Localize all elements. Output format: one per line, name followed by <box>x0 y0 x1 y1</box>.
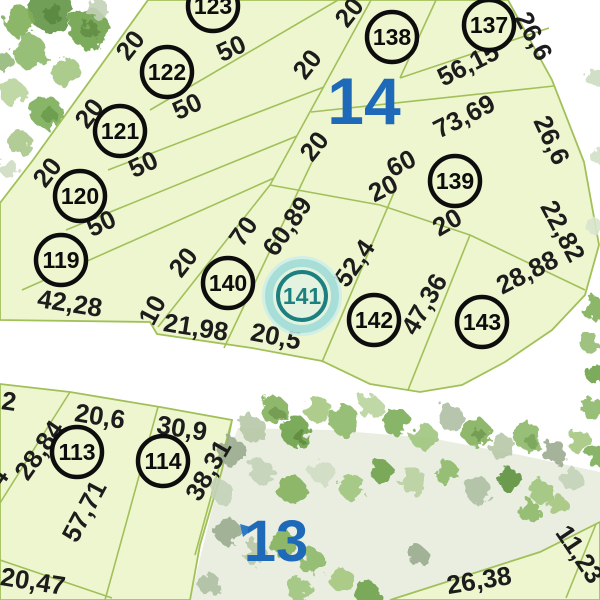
tree-icon <box>568 430 592 454</box>
plot-number: 120 <box>61 183 99 209</box>
plot-number: 114 <box>144 448 181 474</box>
tree-icon <box>329 405 359 435</box>
plot-badge-139[interactable]: 139 <box>430 156 480 206</box>
tree-icon <box>498 468 522 492</box>
plot-number: 113 <box>58 439 95 465</box>
tree-icon <box>519 501 541 523</box>
plot-number: 142 <box>355 307 393 333</box>
tree-icon <box>489 434 515 460</box>
plot-badge-143[interactable]: 143 <box>457 297 507 347</box>
tree-icon <box>30 96 62 128</box>
plot-number: 141 <box>283 283 322 309</box>
tree-icon <box>589 147 600 163</box>
plot-number: 139 <box>436 168 474 194</box>
plot-number: 122 <box>148 59 186 85</box>
tree-icon <box>401 469 427 495</box>
tree-icon <box>28 0 72 32</box>
plot-badge-113[interactable]: 113 <box>52 427 102 477</box>
section-number-14: 14 <box>327 64 401 138</box>
tree-icon <box>408 546 428 566</box>
tree-icon <box>199 574 221 596</box>
tree-icon <box>382 408 410 436</box>
plot-number: 143 <box>463 309 501 335</box>
plot-badge-120[interactable]: 120 <box>55 171 105 221</box>
plot-number: 123 <box>194 0 232 19</box>
plot-number: 138 <box>373 24 412 50</box>
tree-icon <box>358 395 382 419</box>
tree-icon <box>281 417 311 447</box>
plot-badge-122[interactable]: 122 <box>142 47 192 97</box>
tree-icon <box>514 423 542 451</box>
tree-icon <box>250 460 274 484</box>
tree-icon <box>434 460 458 484</box>
tree-icon <box>587 365 600 385</box>
section-number-13: 13 <box>244 509 309 574</box>
plot-number: 121 <box>101 118 140 144</box>
tree-icon <box>0 53 13 71</box>
tree-icon <box>561 469 583 491</box>
plot-badge-140[interactable]: 140 <box>203 258 253 308</box>
tree-icon <box>5 7 35 37</box>
tree-icon <box>586 69 600 87</box>
tree-icon <box>581 397 600 419</box>
tree-icon <box>339 474 365 500</box>
tree-icon <box>579 332 599 352</box>
plot-badge-119[interactable]: 119 <box>36 235 86 285</box>
plot-badge-123[interactable]: 123 <box>188 0 238 31</box>
tree-icon <box>239 415 265 441</box>
plot-badge-138[interactable]: 138 <box>367 12 417 62</box>
tree-icon <box>305 397 331 423</box>
tree-icon <box>462 418 490 446</box>
tree-icon <box>0 159 17 177</box>
tree-icon <box>310 460 334 484</box>
plot-number: 137 <box>470 12 508 38</box>
plot-badge-121[interactable]: 121 <box>95 106 145 156</box>
tree-icon <box>583 298 600 322</box>
tree-icon <box>278 476 306 504</box>
tree-icon <box>371 461 393 483</box>
tree-icon <box>411 424 437 450</box>
tree-icon <box>215 519 241 545</box>
tree-icon <box>51 57 81 87</box>
tree-icon <box>260 396 288 424</box>
tree-icon <box>587 447 600 469</box>
tree-icon <box>542 440 566 464</box>
tree-icon <box>437 404 463 430</box>
tree-icon <box>548 496 568 516</box>
plot-badge-142[interactable]: 142 <box>349 295 399 345</box>
plot-badge-141[interactable]: 141 <box>264 258 341 335</box>
plot-badge-114[interactable]: 114 <box>138 436 188 486</box>
tree-icon <box>0 79 25 105</box>
tree-icon <box>330 568 354 592</box>
plot-number: 140 <box>209 270 247 296</box>
tree-icon <box>465 477 491 503</box>
plot-number: 119 <box>42 247 79 273</box>
plot-badge-137[interactable]: 137 <box>464 0 514 50</box>
tree-icon <box>8 131 32 155</box>
cadastral-map: 5050505020202020202056,1573,6926,626,622… <box>0 0 600 600</box>
tree-icon <box>13 35 47 69</box>
